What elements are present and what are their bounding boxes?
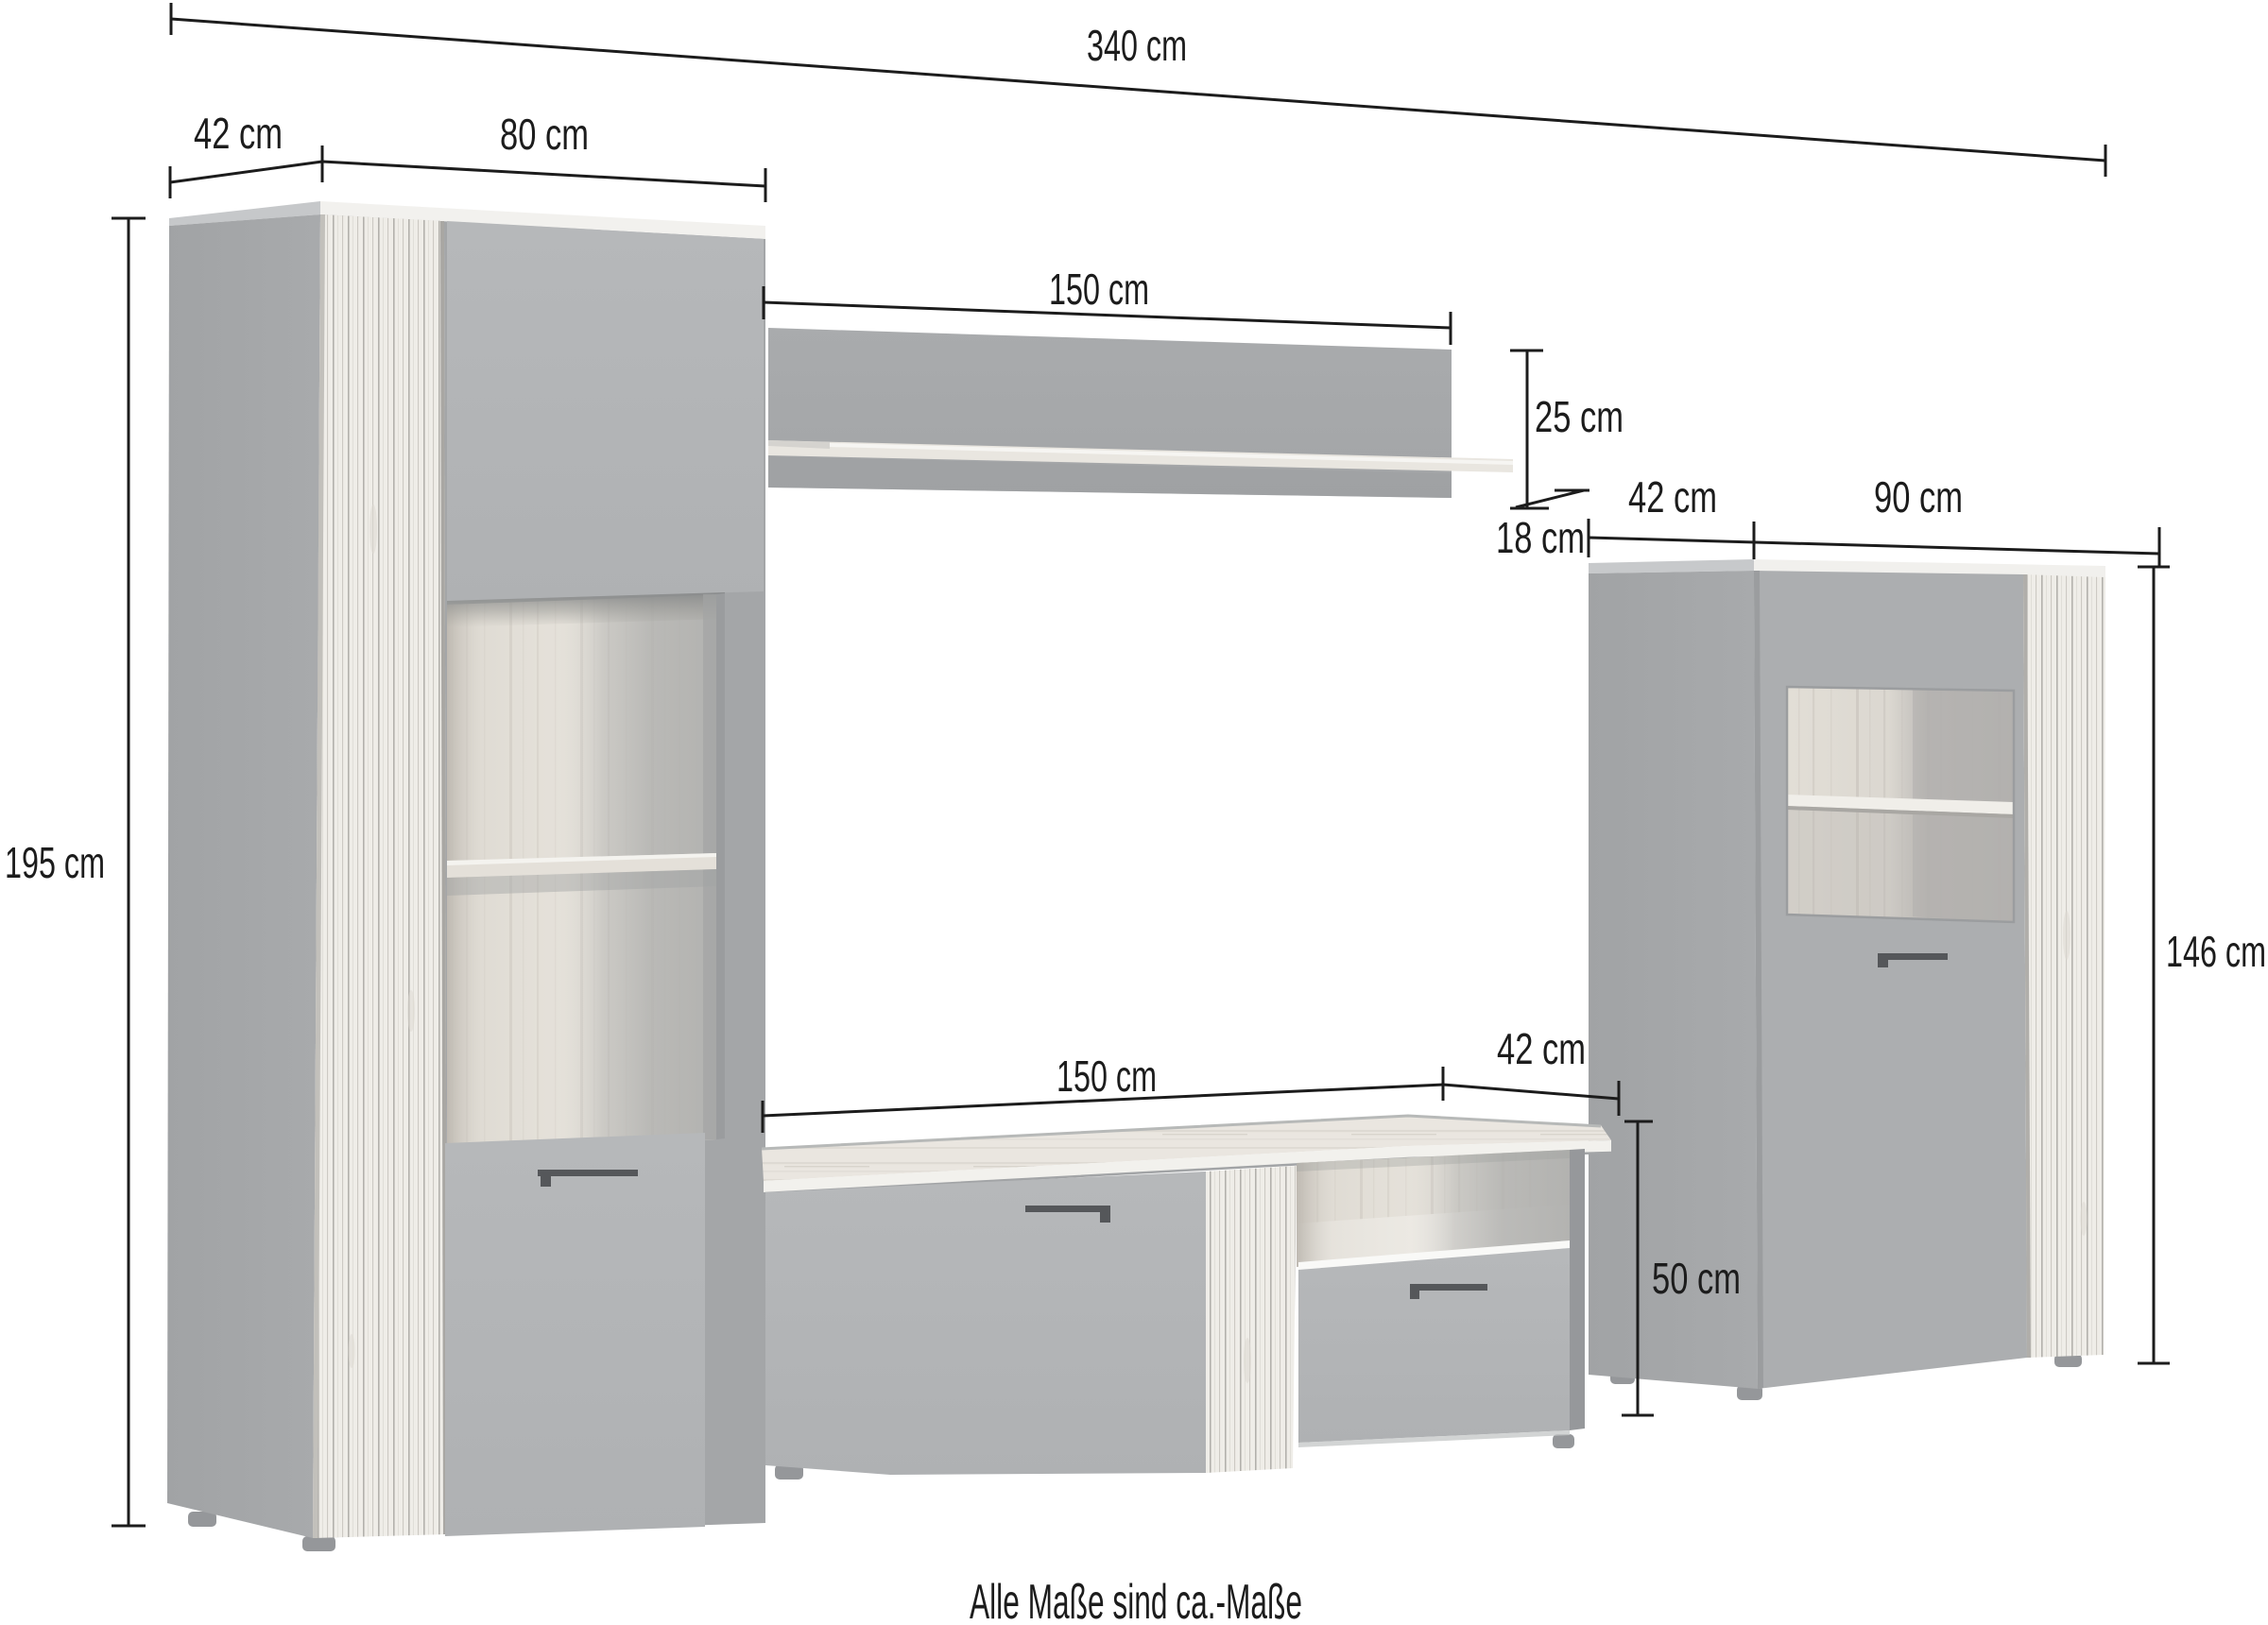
svg-text:25 cm: 25 cm bbox=[1535, 392, 1624, 441]
svg-text:195 cm: 195 cm bbox=[5, 838, 105, 887]
svg-text:150 cm: 150 cm bbox=[1057, 1052, 1157, 1101]
svg-text:90 cm: 90 cm bbox=[1874, 472, 1963, 522]
svg-text:18 cm: 18 cm bbox=[1496, 513, 1585, 562]
svg-text:42 cm: 42 cm bbox=[1497, 1024, 1586, 1073]
svg-text:Alle Maße sind ca.-Maße: Alle Maße sind ca.-Maße bbox=[970, 1575, 1302, 1625]
svg-text:146 cm: 146 cm bbox=[2166, 927, 2266, 976]
svg-text:340 cm: 340 cm bbox=[1087, 21, 1187, 70]
svg-text:42 cm: 42 cm bbox=[194, 109, 283, 158]
svg-text:50 cm: 50 cm bbox=[1652, 1254, 1741, 1303]
svg-text:80 cm: 80 cm bbox=[500, 110, 589, 159]
svg-text:150 cm: 150 cm bbox=[1049, 265, 1149, 314]
svg-text:42 cm: 42 cm bbox=[1628, 472, 1717, 522]
